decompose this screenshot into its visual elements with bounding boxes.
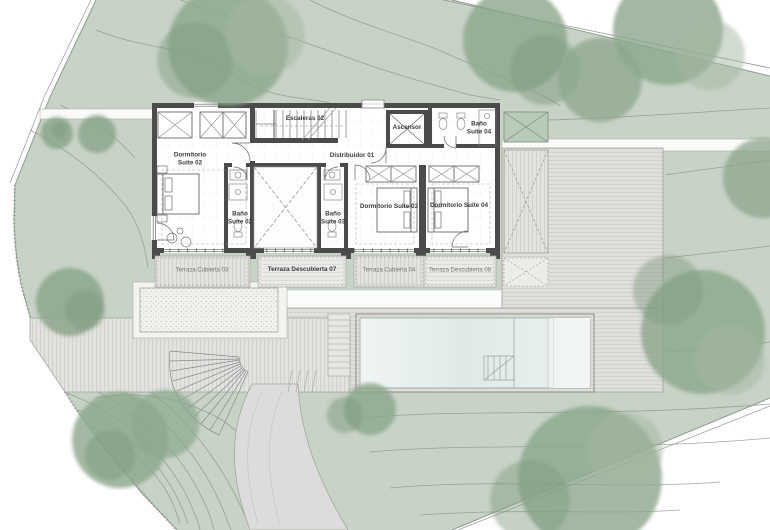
terraza-descubierta-08-area [424, 256, 496, 287]
terraces [155, 256, 496, 287]
planter-box [504, 112, 548, 142]
site-plan-drawing [0, 0, 770, 530]
core-closet [254, 167, 317, 248]
terraza-cubierta-03-area [155, 256, 250, 287]
terraza-descubierta-07-area [258, 256, 346, 287]
gravel-pad [140, 288, 278, 332]
building [151, 100, 500, 259]
floor-plan-canvas: Dormitorio Suite 02 Escaleras 02 Distrib… [0, 0, 770, 530]
deck-strip [504, 150, 548, 286]
terraza-cubierta-04-area [354, 256, 424, 287]
pool [356, 314, 594, 392]
